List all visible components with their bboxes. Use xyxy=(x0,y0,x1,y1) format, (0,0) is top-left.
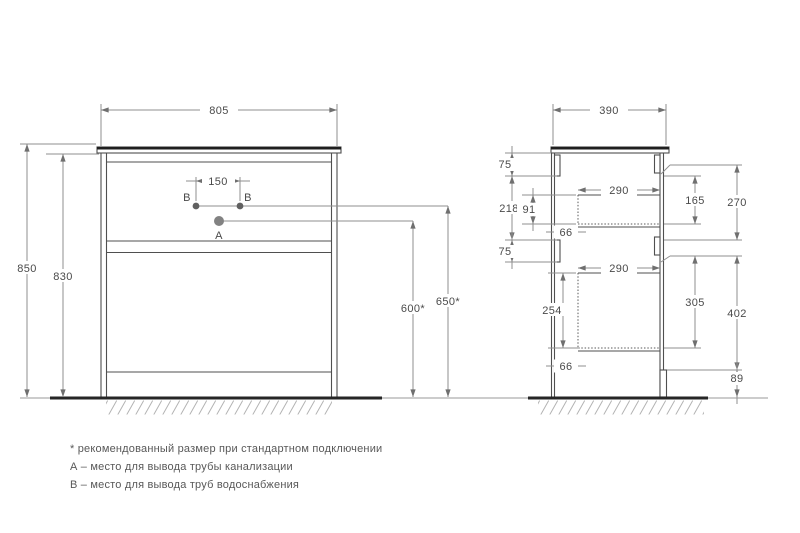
dim-402-label: 402 xyxy=(727,308,747,320)
bracket-mid-right xyxy=(655,237,661,255)
lower-drawer xyxy=(578,273,660,351)
dim-75-top-label: 75 xyxy=(498,159,511,171)
side-floor-hatch xyxy=(538,401,704,415)
side-dim-depth: 390 xyxy=(553,103,666,145)
front-dim-drain-height: 600* xyxy=(395,221,431,397)
bracket-top-left xyxy=(555,155,561,176)
point-b-left-label: B xyxy=(183,192,191,204)
dim-66-upper-label: 66 xyxy=(559,227,572,239)
dim-290-upper-label: 290 xyxy=(609,185,629,197)
side-dim-drawer-side-upper: 91 xyxy=(517,188,542,231)
front-floor-hatch xyxy=(106,401,332,415)
dim-850-label: 850 xyxy=(17,263,37,275)
side-dim-mid-rail: 75 xyxy=(493,233,516,269)
point-b-right-label: B xyxy=(244,192,252,204)
dim-165-label: 165 xyxy=(685,195,705,207)
point-a-dot xyxy=(214,216,224,226)
side-dim-drawer-box-upper: 165 xyxy=(680,176,710,224)
upper-drawer xyxy=(578,195,660,227)
dim-150-label: 150 xyxy=(208,176,228,188)
bracket-mid-left xyxy=(555,240,561,262)
side-dim-upper-section: 270 xyxy=(722,165,752,240)
dim-805-label: 805 xyxy=(209,105,229,117)
dim-290-lower-label: 290 xyxy=(609,263,629,275)
footnote-point-b: B – место для вывода труб водоснабжения xyxy=(70,479,299,491)
front-dim-supply-height: 650* xyxy=(430,206,466,397)
dim-91-label: 91 xyxy=(522,204,535,216)
bracket-top-right xyxy=(655,155,661,173)
dim-254-label: 254 xyxy=(542,305,562,317)
side-dim-lower-section: 402 xyxy=(722,256,752,370)
front-dim-height-cabinet: 830 xyxy=(46,154,99,397)
dim-830-label: 830 xyxy=(53,271,73,283)
point-b-left-dot xyxy=(193,203,200,210)
footnote-recommended-size: * рекомендованный размер при стандартном… xyxy=(70,443,382,455)
front-dim-hole-spacing: 150 xyxy=(186,175,250,202)
connection-leader-lines xyxy=(196,206,448,221)
dim-305-label: 305 xyxy=(685,297,705,309)
front-cabinet-outline xyxy=(101,153,337,397)
front-dim-width: 805 xyxy=(101,103,337,146)
technical-drawing-page: 805 850 830 150 xyxy=(0,0,800,533)
dim-390-label: 390 xyxy=(599,105,619,117)
footnote-point-a: А – место для вывода трубы канализации xyxy=(70,461,293,473)
dim-600-label: 600* xyxy=(401,303,426,315)
side-dim-top-rail: 75 xyxy=(493,146,516,183)
dim-650-label: 650* xyxy=(436,296,461,308)
dim-270-label: 270 xyxy=(727,197,747,209)
side-left-extension-lines xyxy=(505,153,580,348)
footnotes: * рекомендованный размер при стандартном… xyxy=(70,443,382,491)
side-dim-drawer-box-lower: 305 xyxy=(680,256,710,348)
side-floor xyxy=(528,398,708,415)
point-a-label: A xyxy=(215,230,223,242)
side-view: 390 75 218 xyxy=(493,103,752,415)
dim-75-mid-label: 75 xyxy=(498,246,511,258)
side-countertop xyxy=(551,147,669,153)
dim-89-label: 89 xyxy=(730,373,743,385)
dim-66-lower-label: 66 xyxy=(559,361,572,373)
dim-218-label: 218 xyxy=(499,203,519,215)
front-countertop xyxy=(97,147,341,153)
cabinet-dimension-drawing: 805 850 830 150 xyxy=(0,0,800,533)
point-b-right-dot xyxy=(237,203,244,210)
plinth-block xyxy=(660,370,667,397)
